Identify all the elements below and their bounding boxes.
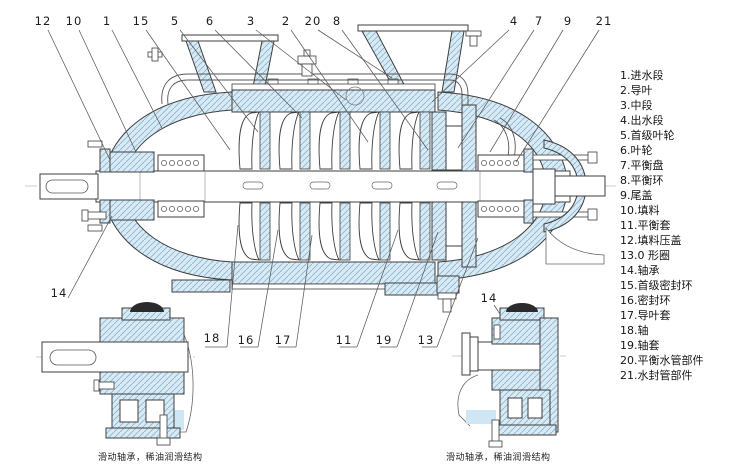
callout-18: 18 — [200, 331, 224, 345]
legend-item-6: 6.叶轮 — [620, 143, 735, 158]
callout-1: 1 — [95, 14, 119, 28]
callout-19: 19 — [372, 333, 396, 347]
callout-14-left: 14 — [47, 286, 71, 300]
legend-item-1: 1.进水段 — [620, 68, 735, 83]
legend-item-19: 19.轴套 — [620, 338, 735, 353]
bearing-cap-left — [130, 302, 164, 312]
main-section-view — [40, 25, 605, 312]
legend-item-8: 8.平衡环 — [620, 173, 735, 188]
caption-right-bearing: 滑动轴承，稀油润滑结构 — [446, 450, 551, 463]
callout-21: 21 — [592, 14, 616, 28]
callout-3: 3 — [239, 14, 263, 28]
legend-item-4: 4.出水段 — [620, 113, 735, 128]
legend-item-5: 5.首级叶轮 — [620, 128, 735, 143]
legend-item-18: 18.轴 — [620, 323, 735, 338]
legend-item-15: 15.首级密封环 — [620, 278, 735, 293]
parts-legend: 1.进水段 2.导叶 3.中段 4.出水段 5.首级叶轮 6.叶轮 7.平衡盘 … — [620, 68, 735, 383]
legend-item-7: 7.平衡盘 — [620, 158, 735, 173]
callout-10: 10 — [62, 14, 86, 28]
callout-11: 11 — [332, 333, 356, 347]
callout-2: 2 — [274, 14, 298, 28]
legend-item-21: 21.水封管部件 — [620, 368, 735, 383]
legend-item-14: 14.轴承 — [620, 263, 735, 278]
shaft — [96, 171, 570, 202]
legend-item-20: 20.平衡水管部件 — [620, 353, 735, 368]
callout-14-right: 14 — [477, 291, 501, 305]
callout-8: 8 — [325, 14, 349, 28]
callout-9: 9 — [556, 14, 580, 28]
legend-item-17: 17.导叶套 — [620, 308, 735, 323]
legend-item-2: 2.导叶 — [620, 83, 735, 98]
detail-view-right-bearing — [452, 303, 566, 447]
callout-4: 4 — [502, 14, 526, 28]
legend-item-12: 12.填料压盖 — [620, 233, 735, 248]
callout-17: 17 — [271, 333, 295, 347]
callout-12: 12 — [31, 14, 55, 28]
bearing-cap-right — [506, 303, 538, 312]
legend-item-9: 9.尾盖 — [620, 188, 735, 203]
caption-left-bearing: 滑动轴承，稀油润滑结构 — [98, 450, 203, 463]
callout-6: 6 — [198, 14, 222, 28]
legend-item-3: 3.中段 — [620, 98, 735, 113]
legend-item-16: 16.密封环 — [620, 293, 735, 308]
callout-16: 16 — [234, 333, 258, 347]
callout-7: 7 — [527, 14, 551, 28]
callout-15: 15 — [129, 14, 153, 28]
pump-diagram-page: 12 10 1 15 5 6 3 2 20 8 4 7 9 21 14 18 1… — [0, 0, 737, 470]
callout-13: 13 — [414, 333, 438, 347]
legend-item-10: 10.填料 — [620, 203, 735, 218]
legend-item-13: 13.0 形圈 — [620, 248, 735, 263]
callout-20: 20 — [301, 14, 325, 28]
detail-view-left-bearing — [36, 302, 198, 445]
legend-item-11: 11.平衡套 — [620, 218, 735, 233]
callout-5: 5 — [163, 14, 187, 28]
